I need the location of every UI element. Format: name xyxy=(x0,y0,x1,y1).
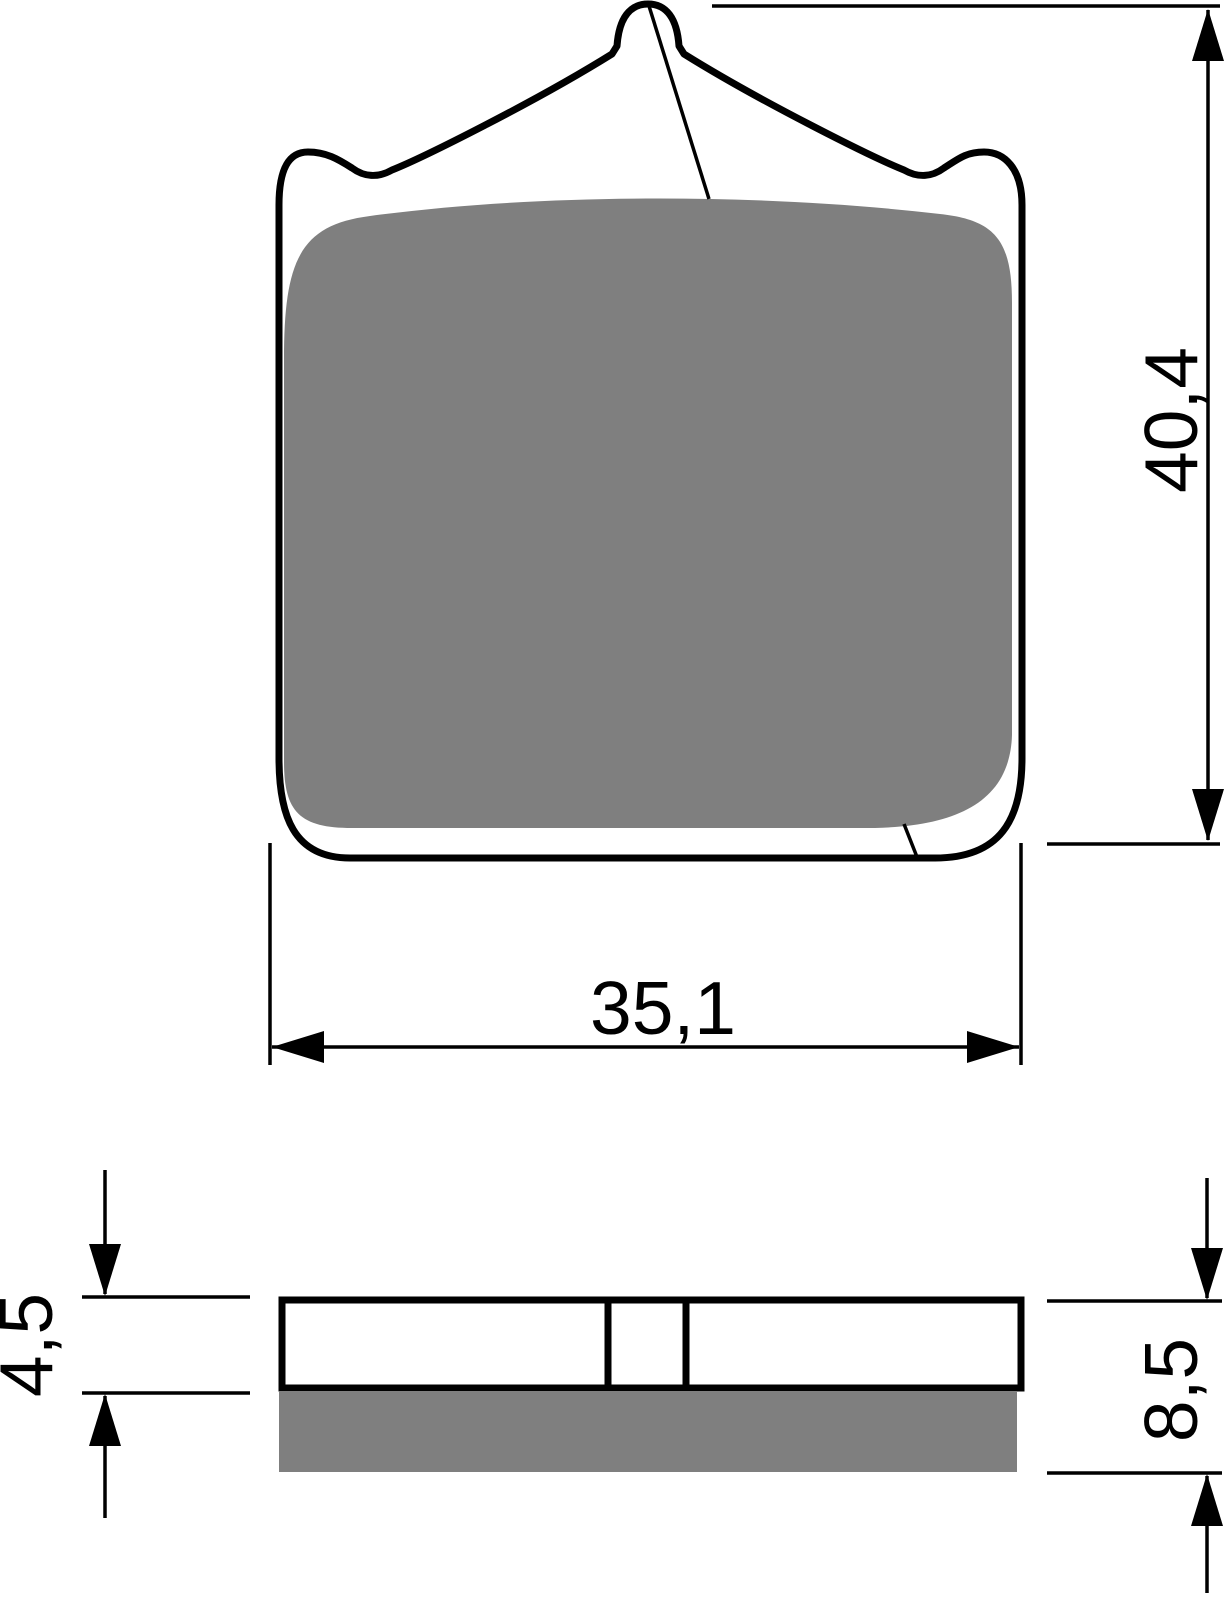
arrowhead-up xyxy=(89,1394,121,1446)
front-view xyxy=(279,4,1022,858)
arrowhead-left xyxy=(272,1031,324,1063)
friction-material xyxy=(284,198,1012,828)
dimension-pad-width: 35,1 xyxy=(270,843,1021,1065)
arrowhead-up xyxy=(1192,9,1224,61)
arrowhead-down xyxy=(89,1244,121,1296)
dimension-total-thickness: 8,5 xyxy=(1047,1178,1223,1593)
dimension-plate-thickness: 4,5 xyxy=(0,1170,250,1518)
plate-thickness-label: 4,5 xyxy=(0,1293,68,1397)
backplate xyxy=(282,1300,1021,1388)
arrowhead-down xyxy=(1191,1248,1223,1300)
pad-height-label: 40,4 xyxy=(1129,347,1213,493)
friction-corner-chamfer-line xyxy=(904,824,917,857)
brake-pad-drawing: 40,4 35,1 4,5 8 xyxy=(0,0,1225,1600)
arrowhead-up xyxy=(1191,1474,1223,1526)
friction-layer xyxy=(279,1392,1017,1472)
arrowhead-down xyxy=(1192,789,1224,841)
pad-width-label: 35,1 xyxy=(590,966,736,1050)
drawing-canvas: 40,4 35,1 4,5 8 xyxy=(0,0,1225,1600)
side-view xyxy=(279,1300,1021,1472)
arrowhead-right xyxy=(967,1031,1019,1063)
total-thickness-label: 8,5 xyxy=(1129,1338,1213,1442)
